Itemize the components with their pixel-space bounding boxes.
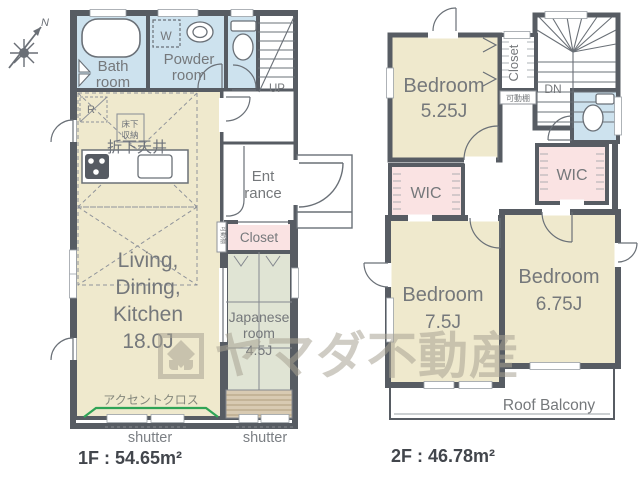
f1-hallway	[222, 90, 295, 145]
f1-bath-label-2: room	[96, 74, 130, 91]
f1-entrance-label-2: rance	[244, 185, 282, 202]
f1-entrance-porch	[292, 155, 353, 228]
f2-bedroom3-label-2: 6.75J	[536, 294, 582, 315]
f2-bedroom1	[390, 35, 500, 160]
f2-balcony-label: Roof Balcony	[503, 397, 595, 414]
f1-area-label: 1F : 54.65m²	[78, 448, 182, 468]
floorplan-canvas: N	[0, 0, 640, 478]
f1-underfloor-label-1: 床下	[121, 119, 139, 129]
f1-fridge-label: R	[87, 104, 95, 116]
f1-ldk-label-4: 18.0J	[122, 330, 173, 353]
f2-bedroom1-label-2: 5.25J	[421, 101, 467, 122]
f2-shelf-label: 可動棚	[506, 93, 530, 103]
f1-ldk-label-1: Living,	[118, 249, 179, 272]
f2-wic1-label: WIC	[410, 185, 441, 202]
stove-icon	[85, 154, 109, 179]
f1-shutter-label-1: shutter	[128, 430, 172, 446]
f1-ldk-label-3: Kitchen	[113, 303, 183, 326]
f2-bedroom2-label-2: 7.5J	[425, 312, 461, 333]
sink-icon	[187, 22, 213, 42]
f1-accent-label: アクセントクロス	[103, 393, 198, 407]
floor2-plan: Bedroom 5.25J Bedroom 7.5J Bedroom 6.75J…	[364, 8, 637, 466]
f1-shelf-label: 可動棚	[219, 226, 227, 244]
f2-bedroom1-label-1: Bedroom	[403, 75, 484, 97]
f1-entrance-label-1: Ent	[252, 168, 275, 185]
f1-board-floor	[226, 390, 292, 418]
f2-wic2-label: WIC	[556, 167, 587, 184]
f1-closet-label: Closet	[240, 230, 279, 245]
f2-closet-label: Closet	[506, 44, 521, 81]
compass-rose-icon: N	[9, 17, 49, 68]
f1-japanese-label-1: Japanese	[229, 309, 290, 325]
f1-japanese-label-2: room	[243, 325, 275, 341]
compass-north-label: N	[41, 17, 49, 29]
f1-underfloor-label-2: 収納	[121, 130, 138, 140]
f1-japanese-label-3: 4.5J	[246, 342, 272, 358]
f2-stairs-down-label: DN	[544, 82, 561, 96]
f1-powder-label-1: Powder	[164, 51, 215, 68]
kitchen-sink-icon	[138, 155, 172, 178]
f1-stairs-up-label: UP	[269, 83, 285, 95]
f2-bedroom3	[502, 212, 618, 366]
f1-bath-label-1: Bath	[98, 58, 129, 75]
f2-area-label: 2F : 46.78m²	[391, 446, 495, 466]
f1-shutter-label-2: shutter	[243, 430, 287, 446]
floorplan-drawing: N	[0, 0, 640, 478]
f1-washer-label: W	[160, 29, 172, 43]
f1-powder-label-2: room	[172, 67, 206, 84]
f2-bedroom2-label-1: Bedroom	[402, 284, 483, 306]
f1-ldk-label-2: Dining,	[115, 276, 180, 299]
f2-bedroom3-label-1: Bedroom	[518, 266, 599, 288]
f1-dropped-ceiling-label: 折下天井	[107, 139, 167, 156]
bathtub-icon	[82, 19, 140, 57]
